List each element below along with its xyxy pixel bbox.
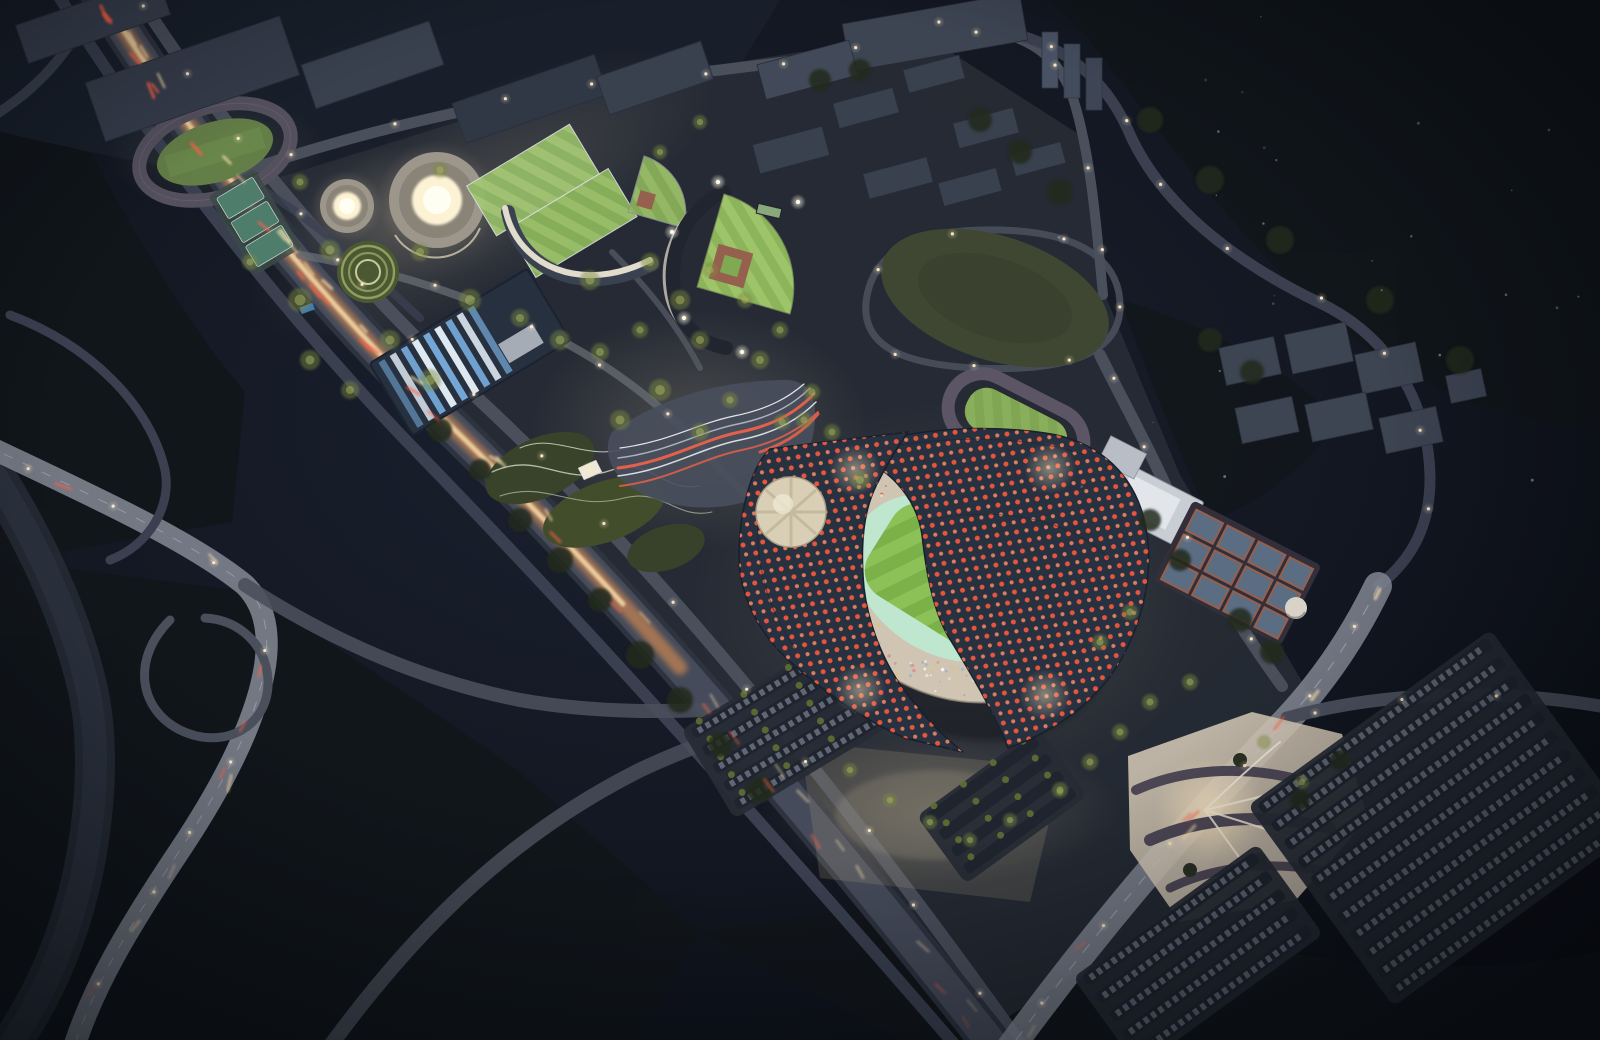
rendering-canvas: Sports park at night — aerial rendering <box>0 0 1600 1040</box>
vignette <box>0 0 1600 1040</box>
aerial-scene: Sports park at night — aerial rendering <box>0 0 1600 1040</box>
